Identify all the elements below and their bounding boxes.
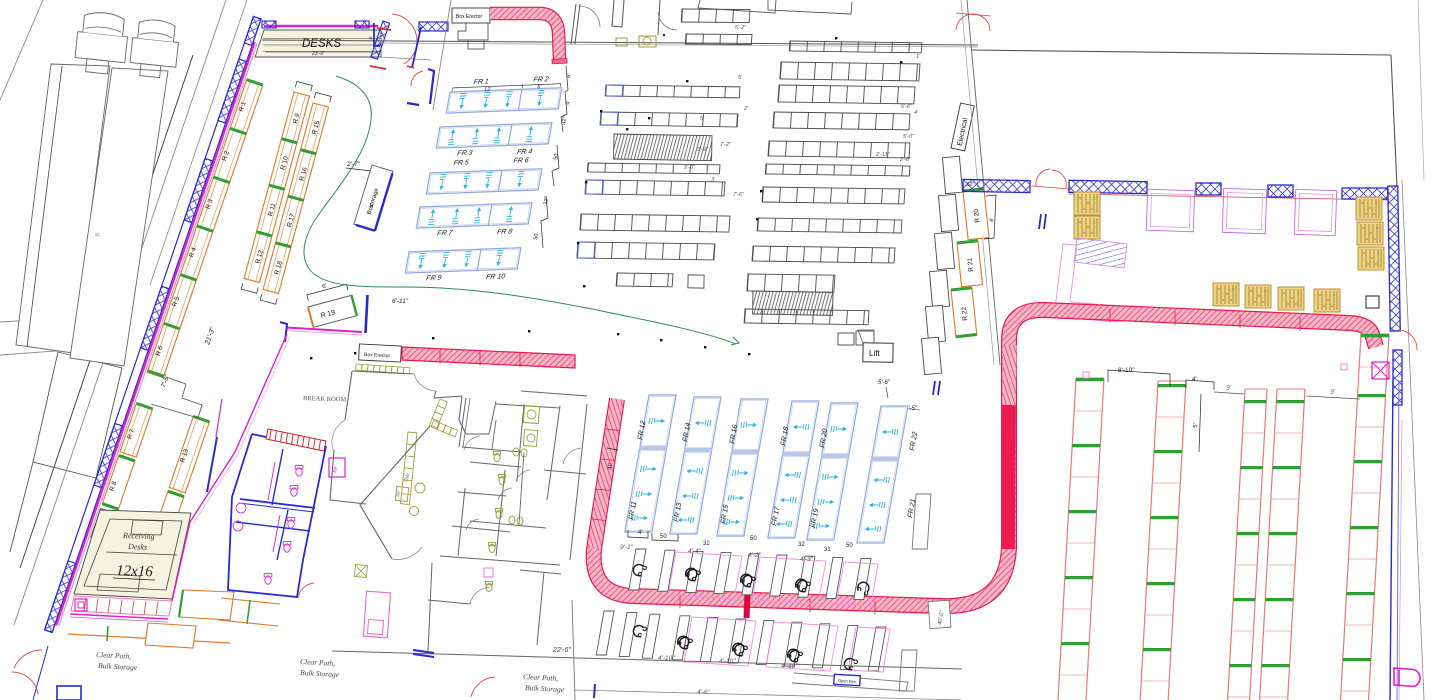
svg-text:2'-8": 2'-8" <box>899 157 912 163</box>
svg-text:Receiving: Receiving <box>122 531 155 541</box>
svg-text:Clear Path,: Clear Path, <box>96 650 132 661</box>
svg-text:2'-7": 2'-7" <box>346 161 361 168</box>
svg-text:FR 8: FR 8 <box>496 229 512 237</box>
svg-text:7'-2": 7'-2" <box>720 142 732 148</box>
svg-text:4'-10": 4'-10" <box>719 658 736 665</box>
svg-text:R 21: R 21 <box>967 257 975 272</box>
svg-text:50: 50 <box>750 536 757 542</box>
svg-text:5'-0": 5'-0" <box>684 165 696 171</box>
svg-text:6'-11": 6'-11" <box>392 298 409 305</box>
svg-text:FR 6: FR 6 <box>513 157 529 165</box>
svg-text:31: 31 <box>824 547 831 553</box>
svg-text:DESKS: DESKS <box>302 38 341 50</box>
svg-text:FR 7: FR 7 <box>437 230 454 238</box>
svg-text:R 20: R 20 <box>973 208 981 223</box>
svg-text:5'-2": 5'-2" <box>735 25 747 31</box>
svg-text:3'-9": 3'-9" <box>697 147 709 153</box>
svg-text:FR 9: FR 9 <box>426 275 442 283</box>
svg-text:12x16: 12x16 <box>116 563 154 580</box>
svg-text:FR 5: FR 5 <box>453 160 469 168</box>
svg-text:5'-6": 5'-6" <box>878 380 891 386</box>
svg-text:12': 12' <box>484 87 492 93</box>
svg-text:32: 32 <box>798 542 805 548</box>
svg-text:FR 2: FR 2 <box>533 76 549 84</box>
svg-text:5': 5' <box>1193 423 1199 428</box>
svg-text:9': 9' <box>1226 385 1232 392</box>
svg-text:9'-1": 9'-1" <box>620 544 634 551</box>
svg-text:8'-10": 8'-10" <box>1118 367 1135 374</box>
svg-text:5'-0": 5'-0" <box>903 134 915 140</box>
svg-text:50: 50 <box>553 153 560 160</box>
svg-text:4': 4' <box>638 530 642 536</box>
svg-text:FR 1: FR 1 <box>473 79 489 87</box>
svg-text:R 22: R 22 <box>961 306 969 321</box>
svg-text:4'-4": 4'-4" <box>688 548 702 555</box>
svg-text:4': 4' <box>1192 377 1196 383</box>
svg-text:FR 4: FR 4 <box>516 149 532 157</box>
svg-text:50: 50 <box>533 233 540 240</box>
svg-text:4'-2": 4'-2" <box>748 552 762 559</box>
svg-text:50: 50 <box>660 534 667 540</box>
svg-text:9': 9' <box>1330 389 1336 396</box>
svg-text:FR 3: FR 3 <box>457 150 473 158</box>
svg-text:32: 32 <box>703 541 710 547</box>
svg-text:4'-6": 4'-6" <box>697 689 711 696</box>
svg-text:22'-6": 22'-6" <box>552 647 571 654</box>
svg-text:5'-6": 5'-6" <box>901 104 913 110</box>
svg-text:Lift: Lift <box>869 349 880 358</box>
svg-text:7'-6": 7'-6" <box>733 192 745 198</box>
svg-text:Open Box: Open Box <box>838 678 856 684</box>
svg-text:Clear Path,: Clear Path, <box>523 672 559 683</box>
svg-text:2'-11": 2'-11" <box>875 152 891 158</box>
svg-text:8': 8' <box>989 217 996 222</box>
svg-text:Desks: Desks <box>127 542 147 552</box>
svg-text:4'-3": 4'-3" <box>800 556 814 563</box>
svg-text:50: 50 <box>846 543 853 549</box>
svg-text:Box Erector: Box Erector <box>456 14 482 20</box>
svg-text:FR 10: FR 10 <box>485 273 505 281</box>
svg-text:Clear Path,: Clear Path, <box>300 657 336 668</box>
